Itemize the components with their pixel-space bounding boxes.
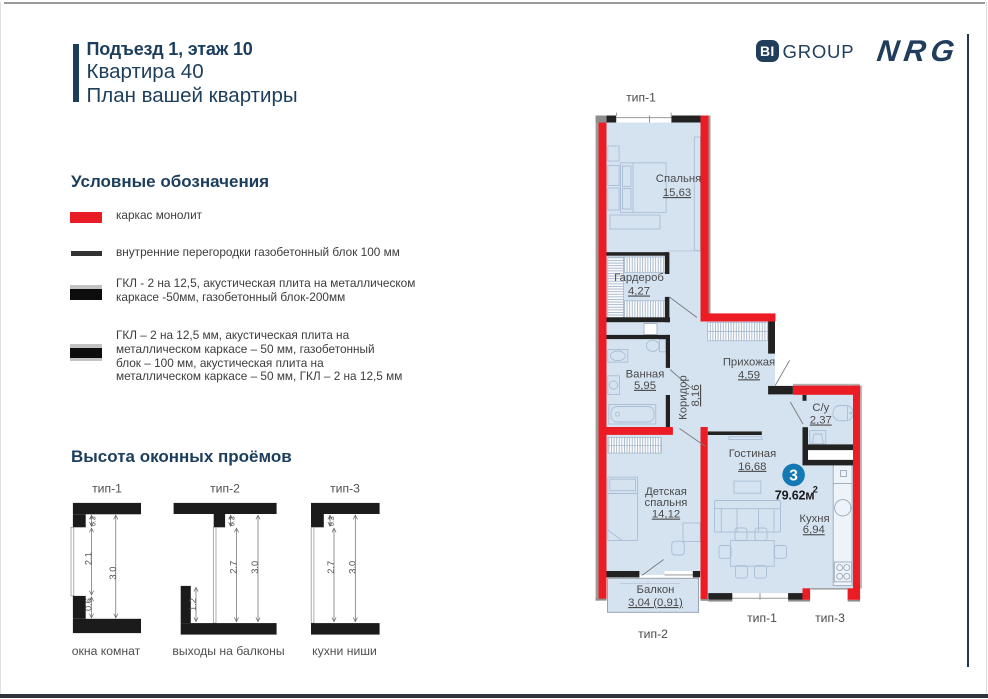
svg-text:тип-2: тип-2 xyxy=(638,627,668,641)
svg-text:2.7: 2.7 xyxy=(326,561,336,574)
svg-text:3.0: 3.0 xyxy=(108,567,118,580)
svg-text:тип-3: тип-3 xyxy=(815,611,845,625)
svg-text:14,12: 14,12 xyxy=(652,509,680,521)
svg-text:Коридор: Коридор xyxy=(678,375,690,420)
svg-text:тип-2: тип-2 xyxy=(210,482,240,496)
svg-text:тип-1: тип-1 xyxy=(626,91,656,105)
svg-text:NRG: NRG xyxy=(875,35,961,67)
svg-text:2.7: 2.7 xyxy=(229,561,239,574)
svg-text:Ванная: Ванная xyxy=(626,369,665,381)
svg-text:4,59: 4,59 xyxy=(738,369,760,381)
svg-text:3,04 (0,91): 3,04 (0,91) xyxy=(628,597,683,609)
svg-text:спальня: спальня xyxy=(645,497,688,509)
svg-text:кухни ниши: кухни ниши xyxy=(312,644,377,658)
svg-text:Гардероб: Гардероб xyxy=(614,272,664,284)
svg-text:С/у: С/у xyxy=(812,402,829,414)
svg-text:15,63: 15,63 xyxy=(663,187,691,199)
svg-text:Прихожая: Прихожая xyxy=(723,356,775,368)
svg-text:8,16: 8,16 xyxy=(690,385,702,407)
svg-text:4,27: 4,27 xyxy=(628,286,650,298)
svg-text:2: 2 xyxy=(813,485,818,495)
svg-text:3: 3 xyxy=(789,467,798,484)
svg-text:Кухня: Кухня xyxy=(799,513,829,525)
svg-text:Спальня: Спальня xyxy=(656,173,701,185)
svg-text:0.3: 0.3 xyxy=(329,516,336,526)
svg-text:5,95: 5,95 xyxy=(634,380,656,392)
svg-text:Балкон: Балкон xyxy=(637,584,675,596)
svg-text:2.1: 2.1 xyxy=(84,552,94,565)
svg-text:3.0: 3.0 xyxy=(347,561,357,574)
svg-text:2,37: 2,37 xyxy=(810,415,832,427)
svg-text:Гостиная: Гостиная xyxy=(729,448,776,460)
svg-text:тип-3: тип-3 xyxy=(330,482,360,496)
svg-text:1.2: 1.2 xyxy=(188,598,198,611)
svg-text:выходы на балконы: выходы на балконы xyxy=(172,644,284,658)
svg-text:3.0: 3.0 xyxy=(250,561,260,574)
svg-text:0.3: 0.3 xyxy=(230,516,237,526)
svg-text:0.3: 0.3 xyxy=(90,516,97,526)
svg-text:16,68: 16,68 xyxy=(738,461,766,473)
svg-text:79.62м: 79.62м xyxy=(775,488,815,502)
svg-text:тип-1: тип-1 xyxy=(747,611,777,625)
svg-text:окна комнат: окна комнат xyxy=(72,644,141,658)
svg-text:0.6: 0.6 xyxy=(84,598,94,611)
svg-text:тип-1: тип-1 xyxy=(92,482,122,496)
svg-text:6,94: 6,94 xyxy=(803,524,825,536)
